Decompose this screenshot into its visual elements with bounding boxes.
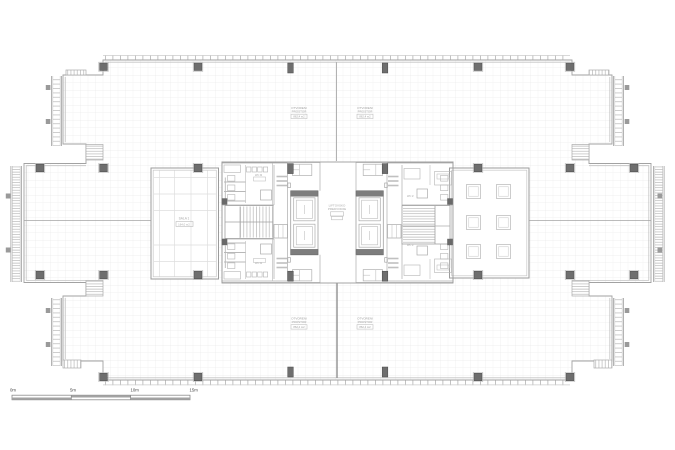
svg-text:862,4 m2: 862,4 m2 (293, 115, 305, 119)
svg-text:862,4 m2: 862,4 m2 (293, 325, 305, 329)
svg-text:WC Z: WC Z (407, 194, 414, 198)
svg-text:PROSTOR: PROSTOR (292, 320, 308, 324)
svg-text:WC M: WC M (255, 261, 262, 265)
svg-text:164,0 m2: 164,0 m2 (178, 222, 190, 226)
svg-text:862,4 m2: 862,4 m2 (359, 115, 371, 119)
svg-text:0m: 0m (10, 387, 16, 392)
svg-text:862,4 m2: 862,4 m2 (359, 325, 371, 329)
svg-text:PREDVORJE: PREDVORJE (328, 207, 346, 211)
svg-text:PROSTOR: PROSTOR (358, 320, 374, 324)
svg-text:10m: 10m (131, 387, 140, 392)
svg-text:SALA 1: SALA 1 (179, 217, 190, 221)
svg-text:5m: 5m (70, 387, 76, 392)
svg-text:PROSTOR: PROSTOR (358, 110, 374, 114)
svg-text:15m: 15m (190, 387, 199, 392)
svg-text:PROSTOR: PROSTOR (292, 110, 308, 114)
svg-text:WC M: WC M (255, 173, 262, 177)
